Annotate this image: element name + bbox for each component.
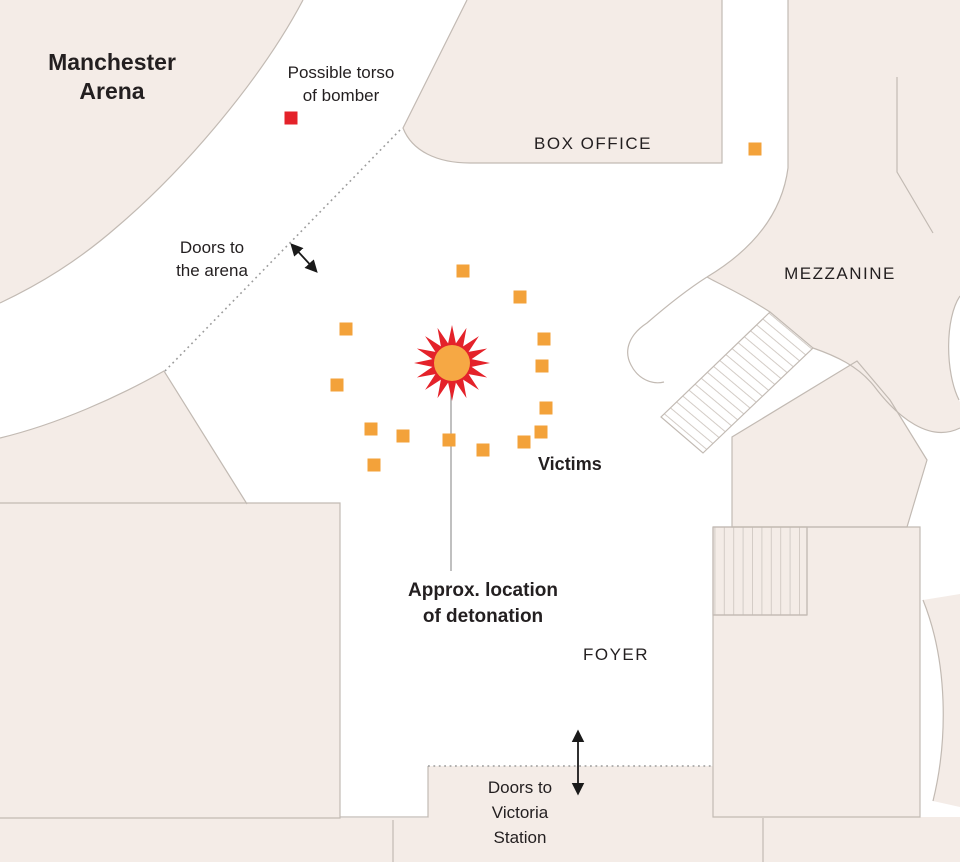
victim-marker: [518, 436, 531, 449]
bomber-torso-marker: [285, 112, 298, 125]
arena-region: [0, 0, 303, 303]
victim-marker: [340, 323, 353, 336]
detonation-label-line1: Approx. location: [408, 580, 558, 601]
doors-arena-label-line2: the arena: [176, 261, 248, 280]
torso-label-line2: of bomber: [303, 86, 380, 105]
torso-label-line1: Possible torso: [288, 63, 395, 82]
detonation-label-line2: of detonation: [423, 606, 543, 627]
mezzanine-label: MEZZANINE: [784, 264, 896, 283]
arena-doors-arrow: [292, 245, 316, 271]
victim-marker: [535, 426, 548, 439]
victim-marker: [457, 265, 470, 278]
victim-marker: [540, 402, 553, 415]
foyer-label: FOYER: [583, 645, 649, 664]
victim-marker: [538, 333, 551, 346]
arena-title-line1: Manchester: [48, 49, 176, 75]
victims-label: Victims: [538, 454, 602, 474]
arena-wall-wedge: [0, 371, 247, 504]
victim-marker: [477, 444, 490, 457]
curved-wall-sliver: [923, 594, 960, 807]
doors-arena-label-line1: Doors to: [180, 238, 244, 257]
victim-marker: [749, 143, 762, 156]
room-fills: [0, 0, 960, 862]
blast-center-icon: [434, 345, 470, 381]
detonation-marker: [414, 325, 490, 401]
victim-marker: [443, 434, 456, 447]
victim-marker: [331, 379, 344, 392]
victim-marker: [514, 291, 527, 304]
doors-victoria-label-line3: Station: [494, 828, 547, 847]
doors-victoria-label-line1: Doors to: [488, 778, 552, 797]
floor-plan-svg: Manchester Arena BOX OFFICE MEZZANINE FO…: [0, 0, 960, 862]
lower-stairs: [713, 527, 807, 615]
victim-marker: [536, 360, 549, 373]
victim-marker: [365, 423, 378, 436]
victim-marker: [368, 459, 381, 472]
box-office-label: BOX OFFICE: [534, 134, 652, 153]
victim-marker: [397, 430, 410, 443]
arena-title-line2: Arena: [79, 78, 144, 104]
foyer-left-room: [0, 503, 340, 818]
infographic-canvas: Manchester Arena BOX OFFICE MEZZANINE FO…: [0, 0, 960, 862]
victoria-station-band-right: [713, 817, 960, 862]
victoria-passage-wall: [340, 766, 428, 817]
doors-victoria-label-line2: Victoria: [492, 803, 549, 822]
hook-wall: [628, 277, 707, 383]
